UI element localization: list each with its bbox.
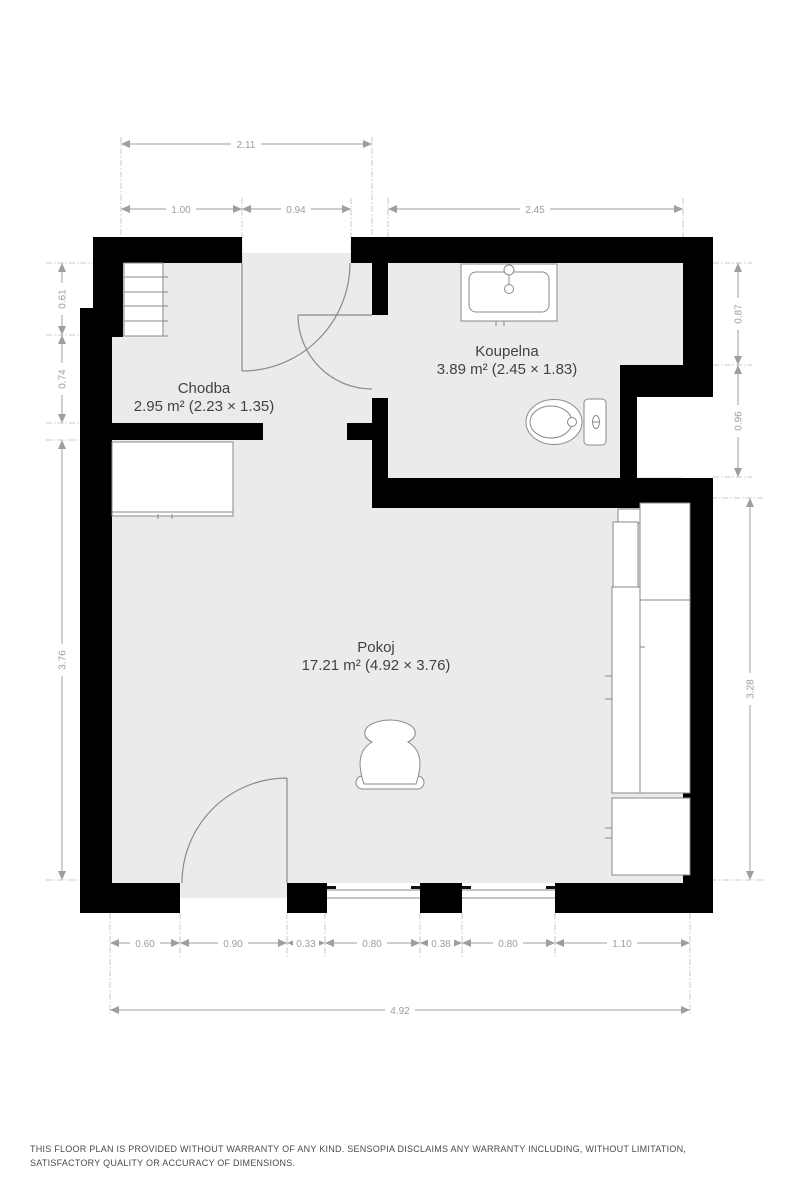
svg-text:2.11: 2.11 bbox=[237, 140, 256, 151]
svg-text:Koupelna: Koupelna bbox=[475, 343, 539, 360]
stairs-icon bbox=[124, 263, 168, 336]
wall-left-step bbox=[80, 308, 123, 337]
window-icon bbox=[462, 886, 555, 898]
dim-label: 0.61 bbox=[56, 283, 69, 315]
wall-bathroom-partition-upper bbox=[372, 263, 388, 315]
cabinet-icon bbox=[605, 798, 690, 875]
dim-label: 2.11 bbox=[231, 138, 261, 151]
svg-text:0.90: 0.90 bbox=[223, 939, 243, 950]
window-icon bbox=[327, 886, 420, 898]
svg-text:3.89 m² (2.45 × 1.83): 3.89 m² (2.45 × 1.83) bbox=[437, 361, 578, 378]
svg-text:4.92: 4.92 bbox=[390, 1006, 410, 1017]
wardrobe-icon bbox=[112, 442, 233, 519]
wall-right-upper bbox=[683, 237, 713, 365]
floor-plan-page: 2.11 1.00 0.94 2.45 0.61 0.74 3.76 0.87 bbox=[0, 0, 800, 1200]
wall-top-left bbox=[93, 237, 242, 263]
toilet-icon bbox=[526, 399, 606, 445]
wall-hall-stub bbox=[347, 423, 372, 440]
svg-text:1.10: 1.10 bbox=[612, 939, 632, 950]
disclaimer-text: THIS FLOOR PLAN IS PROVIDED WITHOUT WARR… bbox=[30, 1143, 746, 1170]
svg-text:Chodba: Chodba bbox=[178, 380, 231, 397]
dim-label: 2.45 bbox=[520, 203, 550, 216]
svg-text:2.95 m² (2.23 × 1.35): 2.95 m² (2.23 × 1.35) bbox=[134, 398, 275, 415]
wall-bottom-2 bbox=[287, 883, 327, 913]
dim-label: 4.92 bbox=[385, 1004, 415, 1017]
svg-text:0.94: 0.94 bbox=[286, 205, 306, 216]
dim-label: 0.60 bbox=[130, 937, 160, 950]
wall-bottom-1 bbox=[80, 883, 180, 913]
dim-label: 0.74 bbox=[56, 363, 69, 395]
dim-label: 0.33 bbox=[293, 937, 319, 950]
svg-text:Pokoj: Pokoj bbox=[357, 639, 395, 656]
wall-notch-side bbox=[620, 397, 637, 478]
dim-label: 0.87 bbox=[732, 298, 745, 330]
wall-left-upper bbox=[93, 263, 123, 308]
dim-label: 0.96 bbox=[732, 405, 745, 437]
shelving-unit-icon bbox=[605, 503, 690, 793]
wall-bottom-3 bbox=[420, 883, 462, 913]
sink-icon bbox=[461, 264, 557, 326]
dim-label: 0.94 bbox=[281, 203, 311, 216]
svg-text:0.61: 0.61 bbox=[58, 289, 69, 309]
chair-icon bbox=[356, 720, 424, 789]
svg-text:17.21 m² (4.92 × 3.76): 17.21 m² (4.92 × 3.76) bbox=[302, 657, 451, 674]
svg-text:0.38: 0.38 bbox=[431, 939, 451, 950]
svg-text:0.74: 0.74 bbox=[58, 369, 69, 389]
wall-notch-top bbox=[620, 365, 713, 397]
dim-label: 1.10 bbox=[607, 937, 637, 950]
svg-text:3.28: 3.28 bbox=[746, 679, 757, 699]
svg-text:2.45: 2.45 bbox=[525, 205, 545, 216]
dim-label: 1.00 bbox=[166, 203, 196, 216]
dim-label: 3.28 bbox=[744, 673, 757, 705]
floor-plan-drawing: 2.11 1.00 0.94 2.45 0.61 0.74 3.76 0.87 bbox=[0, 0, 800, 1200]
svg-text:0.33: 0.33 bbox=[296, 939, 316, 950]
dim-label: 0.80 bbox=[493, 937, 523, 950]
balcony-door-threshold bbox=[180, 883, 287, 898]
wall-hall-bottom bbox=[80, 423, 263, 440]
svg-text:0.96: 0.96 bbox=[734, 411, 745, 431]
svg-text:0.87: 0.87 bbox=[734, 304, 745, 324]
entrance-threshold bbox=[242, 253, 351, 263]
svg-text:0.60: 0.60 bbox=[135, 939, 155, 950]
wall-top-right bbox=[351, 237, 713, 263]
dim-label: 3.76 bbox=[56, 644, 69, 676]
svg-text:0.80: 0.80 bbox=[498, 939, 518, 950]
dim-label: 0.38 bbox=[428, 937, 454, 950]
dim-label: 0.80 bbox=[357, 937, 387, 950]
svg-text:0.80: 0.80 bbox=[362, 939, 382, 950]
svg-text:1.00: 1.00 bbox=[171, 205, 191, 216]
wall-bathroom-partition-lower bbox=[372, 398, 388, 478]
dim-label: 0.90 bbox=[218, 937, 248, 950]
svg-text:3.76: 3.76 bbox=[58, 650, 69, 670]
floor bbox=[112, 253, 683, 898]
